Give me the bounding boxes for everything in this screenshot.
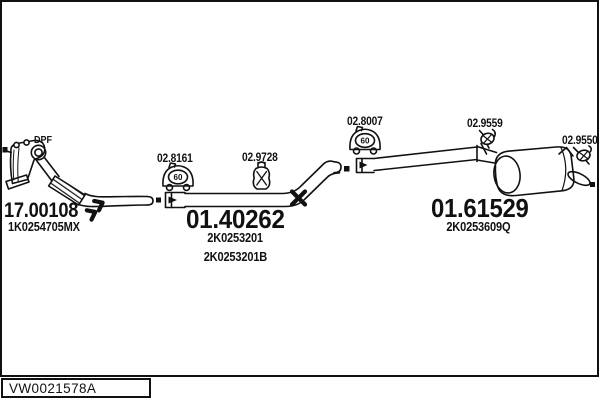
pipe-end-cap — [147, 197, 153, 206]
clamp1-diameter: 60 — [174, 173, 183, 182]
sensor-bung — [14, 142, 19, 147]
hanger-icon-3 — [574, 146, 592, 164]
tail-pipe — [566, 169, 592, 188]
drawing-code: VW0021578A — [3, 381, 96, 396]
weld-x-marker — [292, 192, 305, 205]
fitting-label-hanger3: 02.9550 — [562, 134, 598, 146]
joint-dot — [156, 198, 161, 203]
joint-dot — [590, 182, 595, 187]
dpf-label: DPF — [34, 136, 52, 146]
exhaust-diagram-page: 60 60 — [0, 0, 600, 400]
fitting-label-hanger2: 02.9559 — [467, 117, 503, 129]
oe-number-center-2: 2K0253201B — [204, 250, 267, 263]
fitting-label-hanger1: 02.9728 — [242, 151, 278, 163]
oe-number-rear: 2K0253609Q — [446, 220, 510, 233]
pipe-end-cap — [334, 162, 341, 173]
sensor-bung — [24, 140, 29, 145]
cut-marker-arrow — [85, 198, 107, 220]
title-block: VW0021578A — [1, 378, 151, 398]
part-number-center: 01.40262 — [186, 206, 285, 232]
front-pipe-drawing — [79, 194, 162, 220]
oe-number-front: 1K0254705MX — [8, 220, 80, 233]
clamp-icon-2: 60 — [350, 127, 380, 155]
flow-arrow — [360, 162, 368, 169]
part-number-front: 17.00108 — [4, 200, 78, 221]
fitting-label-clamp2: 02.8007 — [347, 115, 383, 127]
clamp2-diameter: 60 — [361, 137, 370, 146]
fitting-label-clamp1: 02.8161 — [157, 152, 193, 164]
part-number-rear: 01.61529 — [431, 195, 529, 221]
clamp-icon-1: 60 — [163, 163, 193, 191]
hanger-icon-1 — [253, 162, 269, 189]
flow-arrow — [169, 197, 178, 204]
joint-dot — [344, 166, 350, 172]
oe-number-center-1: 2K0253201 — [207, 231, 263, 244]
